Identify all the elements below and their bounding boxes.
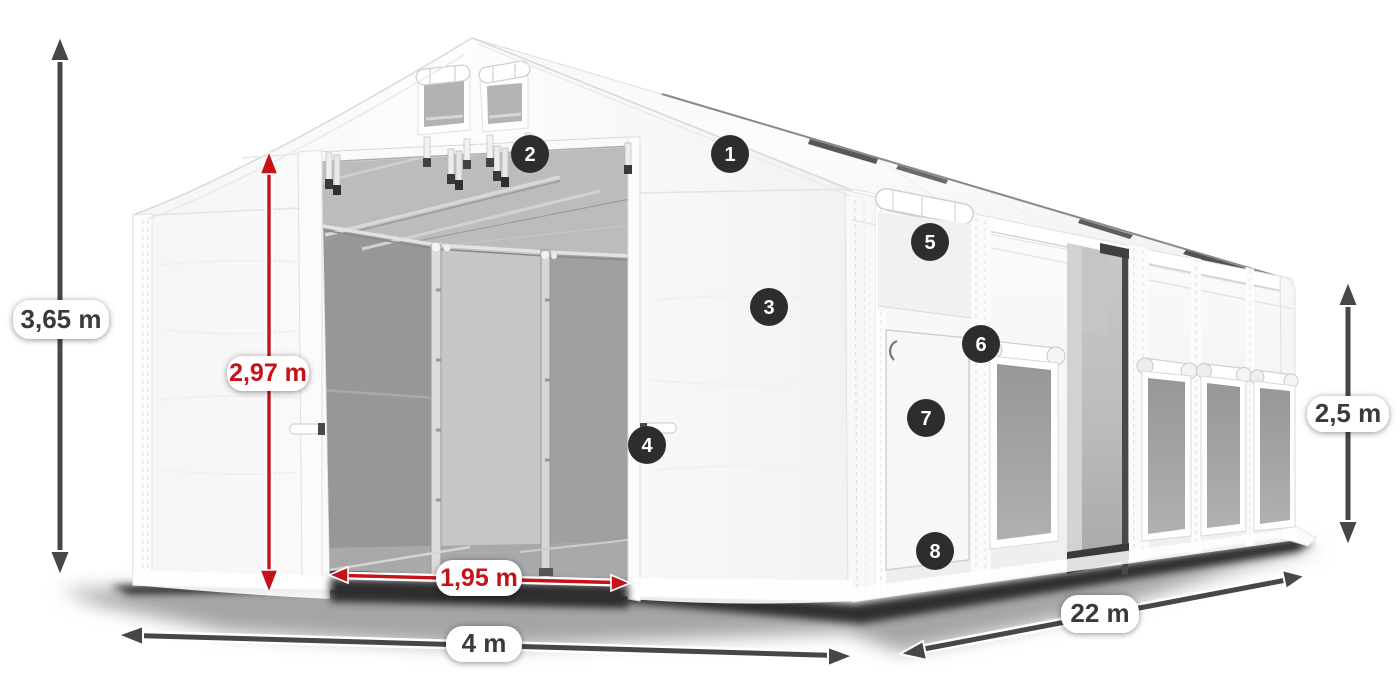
- svg-text:7: 7: [920, 408, 931, 430]
- svg-text:4 m: 4 m: [462, 628, 507, 658]
- svg-text:5: 5: [924, 232, 935, 254]
- svg-text:2,5 m: 2,5 m: [1315, 398, 1382, 428]
- svg-text:3,65 m: 3,65 m: [21, 304, 102, 334]
- svg-text:1,95 m: 1,95 m: [440, 564, 518, 592]
- svg-text:8: 8: [929, 541, 940, 563]
- svg-text:22 m: 22 m: [1070, 598, 1129, 628]
- svg-text:2: 2: [524, 144, 535, 166]
- svg-text:4: 4: [641, 435, 653, 457]
- svg-text:6: 6: [975, 334, 986, 356]
- svg-text:1: 1: [724, 144, 735, 166]
- svg-text:2,97 m: 2,97 m: [229, 359, 307, 387]
- svg-text:3: 3: [763, 297, 774, 319]
